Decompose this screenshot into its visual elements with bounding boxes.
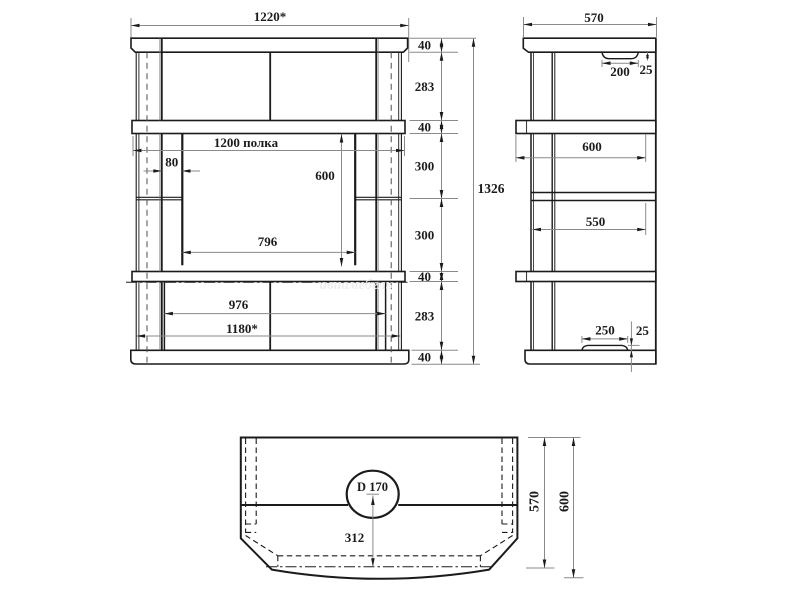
svg-text:300: 300 bbox=[415, 228, 435, 243]
svg-text:80: 80 bbox=[165, 155, 178, 170]
svg-text:600: 600 bbox=[315, 168, 335, 183]
svg-text:1180*: 1180* bbox=[226, 321, 258, 336]
svg-text:796: 796 bbox=[258, 234, 278, 249]
svg-text:25: 25 bbox=[636, 323, 650, 338]
svg-text:D 170: D 170 bbox=[357, 480, 388, 494]
svg-text:25: 25 bbox=[640, 62, 654, 77]
svg-text:550: 550 bbox=[586, 214, 606, 229]
svg-text:1200 полка: 1200 полка bbox=[214, 135, 279, 150]
svg-text:1220*: 1220* bbox=[254, 9, 287, 24]
svg-text:300: 300 bbox=[415, 159, 435, 174]
svg-text:570: 570 bbox=[528, 491, 543, 512]
svg-text:200: 200 bbox=[610, 64, 630, 79]
svg-text:976: 976 bbox=[229, 297, 249, 312]
svg-text:40: 40 bbox=[418, 269, 431, 284]
svg-text:312: 312 bbox=[345, 530, 365, 545]
svg-text:авиамебель: авиамебель bbox=[320, 277, 393, 293]
svg-text:1326: 1326 bbox=[478, 181, 505, 196]
svg-text:40: 40 bbox=[418, 120, 431, 135]
svg-text:40: 40 bbox=[418, 350, 431, 365]
svg-text:250: 250 bbox=[595, 323, 615, 338]
svg-text:570: 570 bbox=[584, 10, 604, 25]
svg-text:283: 283 bbox=[415, 79, 435, 94]
svg-text:600: 600 bbox=[558, 491, 573, 512]
svg-text:283: 283 bbox=[415, 308, 435, 323]
svg-text:40: 40 bbox=[418, 38, 431, 53]
svg-text:600: 600 bbox=[582, 139, 602, 154]
